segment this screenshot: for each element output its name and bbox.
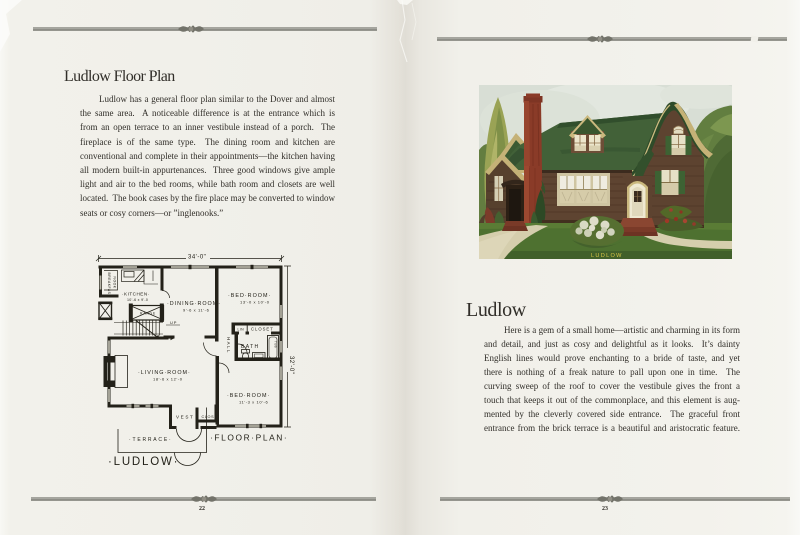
- svg-text:·LIVING·ROOM·: ·LIVING·ROOM·: [138, 370, 191, 376]
- svg-text:·FLOOR·PLAN·: ·FLOOR·PLAN·: [210, 433, 288, 443]
- svg-text:VEST: VEST: [176, 415, 194, 420]
- svg-text:18'-6 x 12'-0: 18'-6 x 12'-0: [153, 377, 183, 382]
- svg-text:NOOK: NOOK: [113, 277, 117, 289]
- svg-text:32'-0": 32'-0": [288, 356, 294, 374]
- svg-text:UP: UP: [170, 320, 177, 325]
- svg-text:34'-0": 34'-0": [188, 255, 206, 261]
- svg-text:BREAKFAST: BREAKFAST: [107, 273, 111, 297]
- svg-text:CLOSET: CLOSET: [251, 327, 274, 332]
- svg-text:·KITCHEN·: ·KITCHEN·: [122, 292, 150, 297]
- svg-text:TUB: TUB: [274, 341, 278, 348]
- svg-text:·LUDLOW·: ·LUDLOW·: [108, 456, 179, 468]
- svg-text:·DINING·ROOM·: ·DINING·ROOM·: [167, 301, 221, 307]
- svg-text:LIN: LIN: [238, 327, 245, 331]
- svg-text:9'-6 x 11'-6: 9'-6 x 11'-6: [183, 308, 210, 313]
- svg-text:LUDLOW: LUDLOW: [591, 253, 623, 259]
- svg-text:RANGE: RANGE: [140, 312, 156, 316]
- svg-text:HALL: HALL: [226, 337, 231, 354]
- svg-text:·BED·ROOM·: ·BED·ROOM·: [228, 293, 271, 299]
- svg-text:CLOS: CLOS: [202, 415, 215, 419]
- svg-text:11'-3 x 10'-6: 11'-3 x 10'-6: [239, 400, 268, 405]
- svg-text:·TERRACE·: ·TERRACE·: [129, 437, 172, 443]
- svg-text:·BED·ROOM·: ·BED·ROOM·: [227, 393, 270, 399]
- svg-text:13'-0 x 10'-0: 13'-0 x 10'-0: [240, 300, 270, 305]
- svg-text:BATH: BATH: [241, 344, 260, 350]
- svg-text:10'-6 x 9'-0: 10'-6 x 9'-0: [127, 298, 148, 302]
